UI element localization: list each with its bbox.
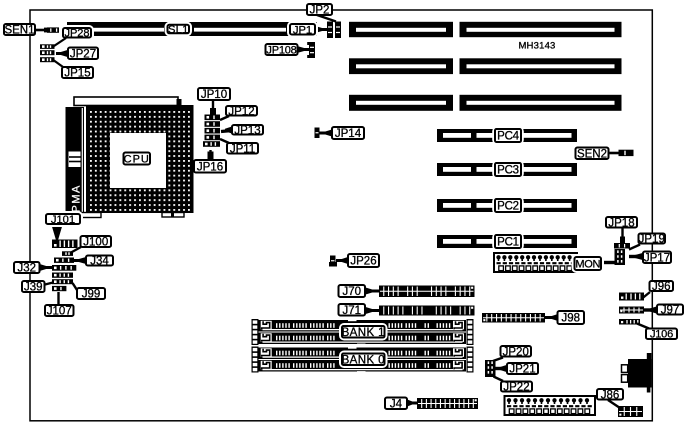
svg-text:JP28: JP28 xyxy=(64,28,89,40)
svg-text:PC2: PC2 xyxy=(497,201,519,213)
svg-text:JP16: JP16 xyxy=(197,161,223,173)
svg-text:JP21: JP21 xyxy=(509,364,535,376)
svg-text:J101: J101 xyxy=(51,214,75,226)
svg-text:J39: J39 xyxy=(24,282,43,294)
svg-text:BANK 1: BANK 1 xyxy=(342,327,385,339)
svg-text:J4: J4 xyxy=(390,398,403,410)
svg-text:JP13: JP13 xyxy=(234,125,260,137)
svg-text:JP14: JP14 xyxy=(335,128,362,140)
svg-text:J106: J106 xyxy=(650,329,673,341)
svg-text:JP17: JP17 xyxy=(644,252,670,264)
svg-text:JP26: JP26 xyxy=(350,256,376,268)
svg-text:J99: J99 xyxy=(82,289,101,301)
svg-text:J98: J98 xyxy=(561,313,580,325)
svg-text:PMA: PMA xyxy=(71,184,83,212)
svg-text:PC3: PC3 xyxy=(497,165,519,177)
svg-text:JP10: JP10 xyxy=(201,89,227,101)
svg-text:JP11: JP11 xyxy=(230,143,255,155)
svg-text:JP108: JP108 xyxy=(266,45,296,57)
svg-text:J71: J71 xyxy=(342,305,361,317)
svg-text:JP1: JP1 xyxy=(293,24,312,36)
svg-text:SL1: SL1 xyxy=(168,24,189,36)
svg-text:JP15: JP15 xyxy=(64,68,90,80)
svg-text:J86: J86 xyxy=(601,389,620,401)
svg-text:BANK 0: BANK 0 xyxy=(342,354,385,366)
svg-text:JP12: JP12 xyxy=(228,106,254,118)
svg-text:SEN1: SEN1 xyxy=(4,25,34,37)
svg-text:J34: J34 xyxy=(90,256,109,268)
svg-text:J32: J32 xyxy=(17,263,36,275)
svg-text:J97: J97 xyxy=(661,305,680,317)
svg-text:PC4: PC4 xyxy=(497,131,520,143)
svg-text:CPU: CPU xyxy=(124,154,150,166)
svg-text:MH3143: MH3143 xyxy=(518,41,555,52)
svg-text:J100: J100 xyxy=(83,237,108,249)
svg-text:J107: J107 xyxy=(47,306,72,318)
svg-text:JP19: JP19 xyxy=(639,234,665,246)
svg-text:JP22: JP22 xyxy=(503,382,529,394)
svg-text:MON: MON xyxy=(575,259,600,271)
svg-text:J96: J96 xyxy=(652,281,671,293)
svg-text:JP18: JP18 xyxy=(608,217,634,229)
svg-text:JP20: JP20 xyxy=(503,346,529,358)
svg-text:JP27: JP27 xyxy=(70,48,96,60)
svg-text:J70: J70 xyxy=(342,286,361,298)
svg-text:JP2: JP2 xyxy=(310,5,330,17)
svg-text:SEN2: SEN2 xyxy=(577,148,607,160)
svg-text:PC1: PC1 xyxy=(497,237,519,249)
